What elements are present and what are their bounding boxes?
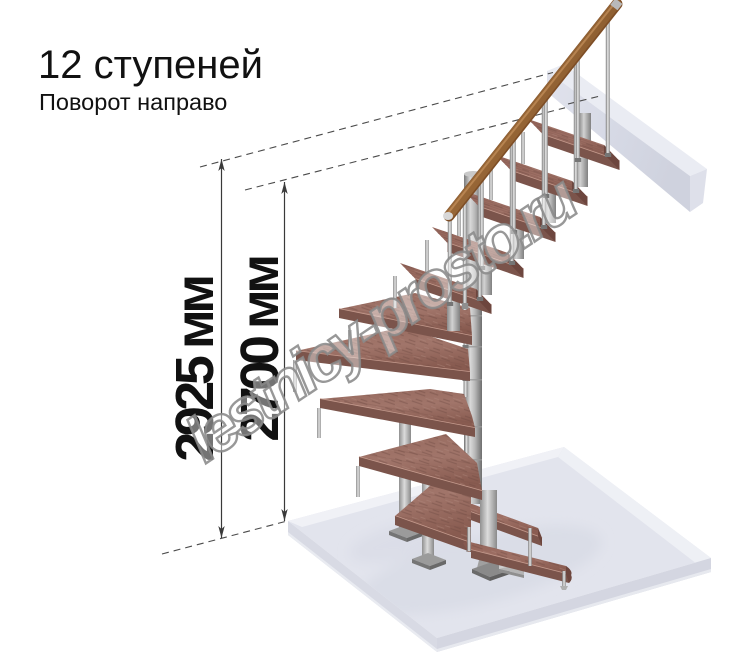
svg-text:Поворот направо: Поворот направо [39, 89, 227, 115]
svg-text:12 ступеней: 12 ступеней [38, 43, 263, 87]
